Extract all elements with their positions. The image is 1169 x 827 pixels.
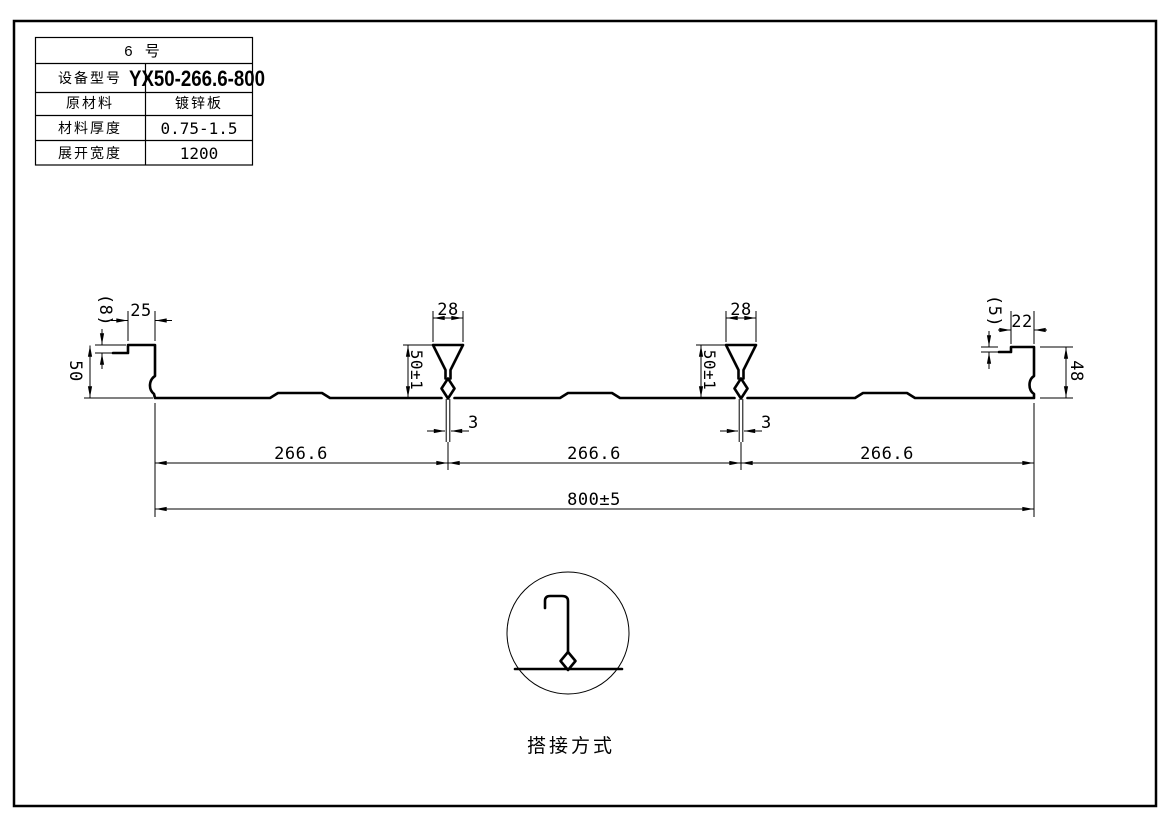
title-block-label-width: 展开宽度 — [58, 145, 122, 161]
dim-text-overall-width: 800±5 — [567, 490, 621, 510]
dim-text-pitch-3: 266.6 — [860, 444, 914, 464]
dim-text-rib1-height: 50±1 — [407, 350, 426, 391]
dim-text-rib2-height: 50±1 — [700, 350, 719, 391]
drawing-page: 6 号 设备型号 YX50-266.6-800 原材料 镀锌板 材料厚度 0.7… — [0, 0, 1169, 827]
title-block-value-width: 1200 — [180, 144, 219, 163]
dim-text-rib1-top-width: 28 — [437, 300, 458, 320]
title-block-label-thickness: 材料厚度 — [58, 120, 122, 136]
dim-text-left-lip-width: 25 — [130, 301, 151, 321]
title-block-label-model: 设备型号 — [58, 70, 122, 86]
dim-text-right-lip-step: (5) — [984, 295, 1004, 327]
dim-text-rib1-stem-width: 3 — [468, 413, 479, 433]
drawing-border — [14, 21, 1156, 806]
dim-text-left-edge-height: 50 — [65, 360, 85, 381]
title-block-label-material: 原材料 — [66, 95, 114, 111]
dim-text-rib2-stem-width: 3 — [761, 413, 772, 433]
dim-text-rib2-top-width: 28 — [730, 300, 751, 320]
dim-text-right-lip-width: 22 — [1011, 312, 1032, 332]
model-number-value: YX50-266.6-800 — [129, 66, 265, 91]
title-block-header: 6 号 — [124, 43, 164, 60]
title-block-value-thickness: 0.75-1.5 — [160, 119, 237, 138]
dim-text-pitch-1: 266.6 — [274, 444, 328, 464]
dim-text-left-lip-step: (8) — [95, 294, 115, 326]
dim-text-right-edge-height: 48 — [1066, 360, 1086, 381]
dim-text-pitch-2: 266.6 — [567, 444, 621, 464]
title-block-value-material: 镀锌板 — [175, 95, 223, 111]
lap-detail-caption: 搭接方式 — [527, 735, 615, 757]
engineering-drawing-canvas: 6 号 设备型号 YX50-266.6-800 原材料 镀锌板 材料厚度 0.7… — [0, 0, 1169, 827]
